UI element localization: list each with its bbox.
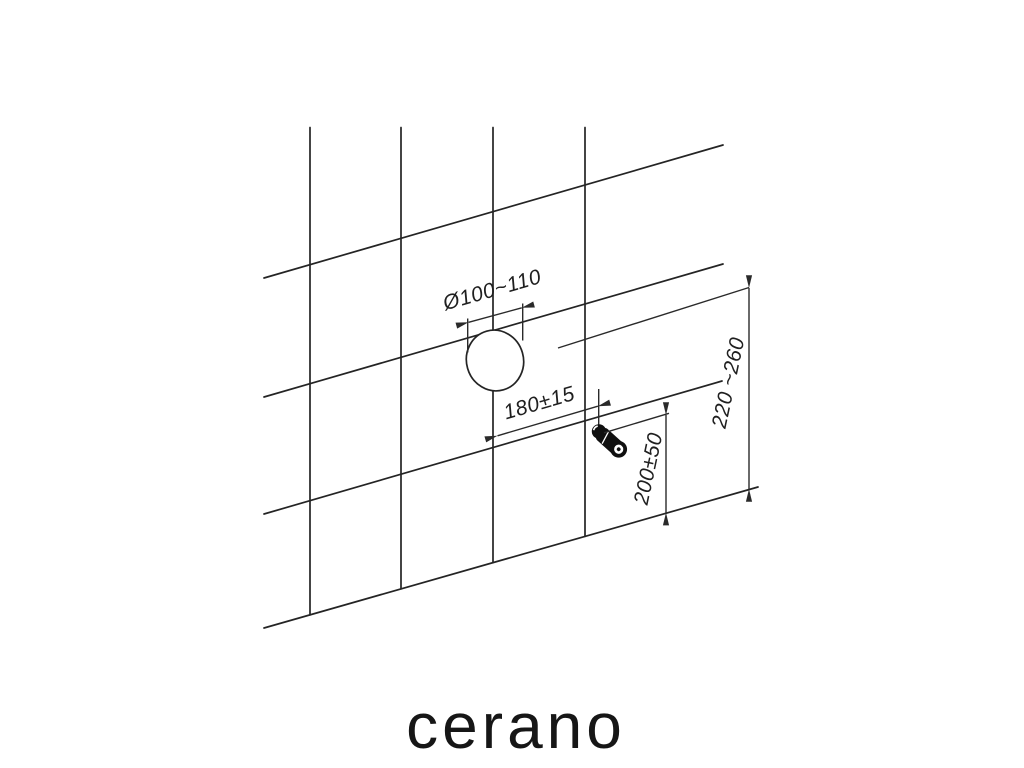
horizontal-distance-label: 180±15 (501, 382, 577, 424)
reference-line-top (558, 288, 749, 349)
dimension-line (469, 308, 522, 323)
drain-hole-circle (459, 323, 531, 397)
horizontal-tile-line-4-floor (264, 487, 758, 628)
drain-diameter-label: Ø100~110 (439, 265, 544, 315)
horizontal-distance-dimension: 180±15 (498, 382, 599, 436)
supply-height-dimension: 200±50 (604, 413, 669, 512)
supply-height-label: 200±50 (630, 431, 668, 508)
diagram-canvas: Ø100~110 180±15 200±50 220 (0, 0, 1024, 768)
reference-line-top (604, 413, 669, 433)
installation-diagram: Ø100~110 180±15 200±50 220 (0, 0, 1024, 768)
brand-logo: cerano (406, 690, 626, 762)
